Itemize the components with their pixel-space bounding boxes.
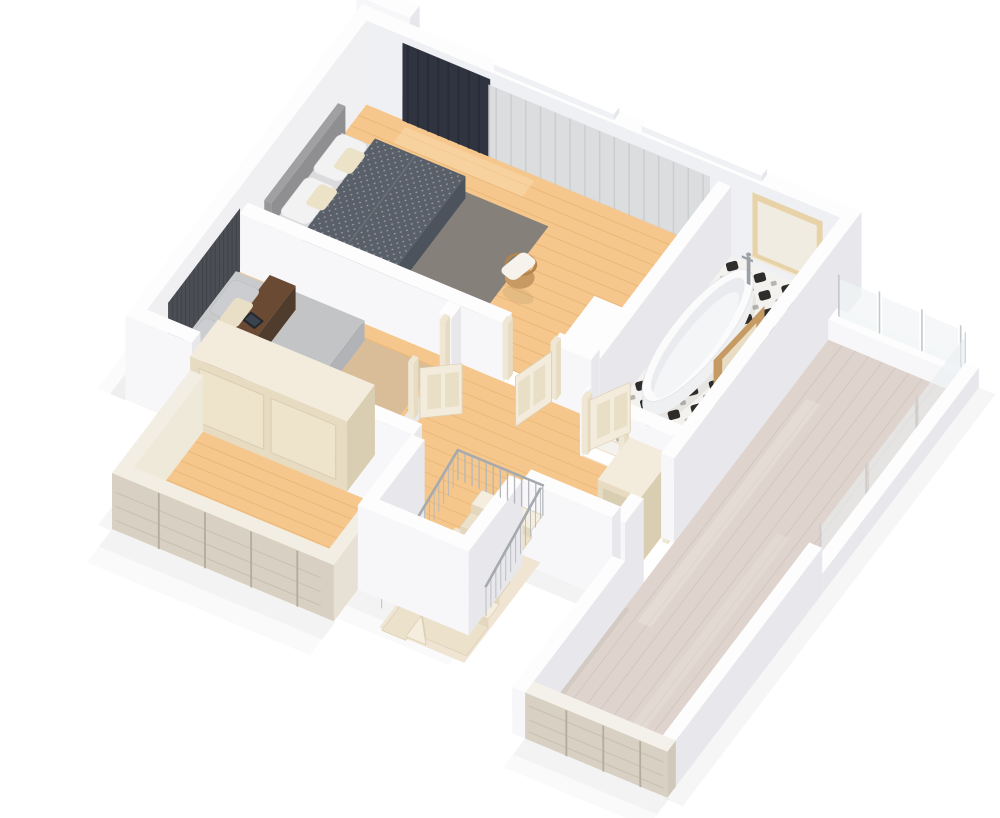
scene <box>0 0 1000 818</box>
floorplan-render <box>0 0 1000 818</box>
floorplan-stage <box>0 0 1000 818</box>
